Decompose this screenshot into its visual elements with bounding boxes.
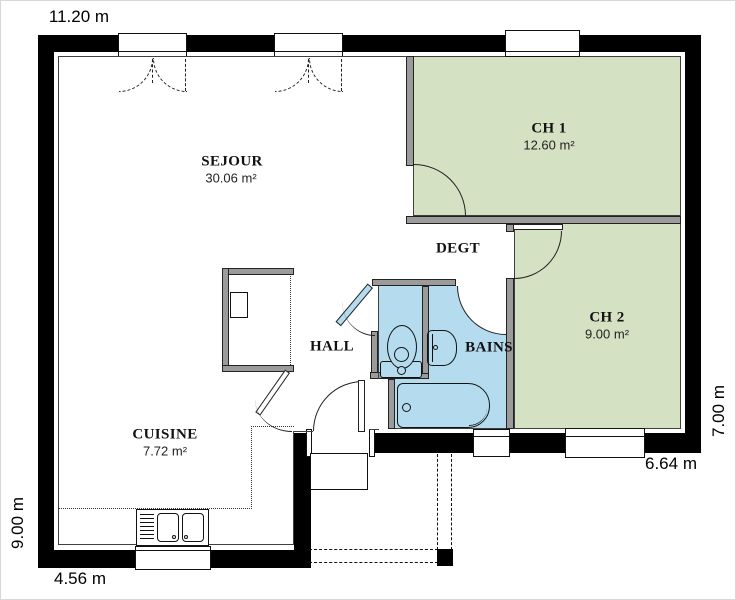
lining-left bbox=[58, 56, 59, 545]
room-label-hall: HALL bbox=[310, 339, 354, 356]
window-sejour-right-sill bbox=[274, 51, 343, 52]
lining-door-right bbox=[369, 429, 379, 430]
room-label-cuisine: CUISINE bbox=[132, 427, 197, 444]
lining-top bbox=[58, 56, 407, 57]
exterior-wall-left bbox=[38, 35, 54, 568]
french-door-swing-1-left bbox=[119, 58, 153, 92]
room-area-ch1: 12.60 m² bbox=[523, 138, 574, 153]
sink-drainer-line bbox=[140, 530, 154, 531]
wc-door-swing bbox=[342, 301, 375, 336]
bathtub-drain-icon bbox=[402, 403, 411, 412]
sink-drainer-line bbox=[140, 534, 154, 535]
room-label-ch1: CH 1 bbox=[531, 121, 566, 138]
window-ch2-sill bbox=[565, 436, 645, 437]
ch2-door-leaf bbox=[513, 224, 563, 230]
lining-bath-left bbox=[378, 286, 379, 379]
front-door-swing bbox=[313, 381, 363, 431]
wall-wc-top bbox=[372, 279, 456, 286]
sink-drainer-line bbox=[140, 518, 154, 519]
window-cuisine-sill bbox=[135, 550, 211, 551]
porch-edge-bottom-inner bbox=[309, 562, 438, 564]
french-door-swing-2-right bbox=[309, 58, 343, 92]
french-door-leaf-line-2a bbox=[308, 59, 309, 83]
washbasin-tap-icon bbox=[433, 345, 438, 350]
window-sejour-left bbox=[118, 33, 187, 57]
sink-tap-left-icon bbox=[172, 535, 176, 539]
window-sejour-left-sill bbox=[118, 51, 187, 52]
exterior-wall-right bbox=[685, 35, 701, 453]
window-ch1-sill bbox=[505, 51, 580, 52]
cuisine-boundary-vertical bbox=[251, 426, 252, 509]
wall-bath-left bbox=[388, 379, 395, 429]
entrance-step bbox=[310, 453, 368, 490]
room-area-ch2: 9.00 m² bbox=[585, 327, 629, 342]
water-heater-icon bbox=[230, 292, 248, 318]
room-label-ch2: CH 2 bbox=[589, 310, 624, 327]
dimension-right: 7.00 m bbox=[709, 385, 729, 437]
wall-ch1-bottom bbox=[406, 216, 681, 224]
sink-drainer-line bbox=[140, 526, 154, 527]
room-label-bains: BAINS bbox=[465, 340, 513, 357]
lining-hall-bottom bbox=[293, 431, 313, 432]
hall-door-swing bbox=[255, 399, 292, 432]
wall-sejour-ch1 bbox=[406, 56, 414, 166]
toilet-bowl-inner-icon bbox=[394, 347, 409, 362]
porch-edge-bottom-outer bbox=[309, 549, 438, 551]
dimension-bottom-right: 6.64 m bbox=[645, 454, 697, 474]
lining-connector bbox=[293, 431, 294, 545]
exterior-wall-bottom-right-b bbox=[369, 433, 701, 453]
toilet-flush-knob-icon bbox=[397, 366, 406, 375]
porch-edge-right-inner bbox=[437, 454, 439, 550]
french-door-leaf-line-2b bbox=[341, 59, 342, 91]
window-ch2 bbox=[565, 428, 645, 458]
sink-drainer-line bbox=[140, 522, 154, 523]
closet-open-front bbox=[290, 276, 291, 365]
sink-drainer-line bbox=[140, 538, 154, 539]
floor-plan: SEJOUR 30.06 m² CH 1 12.60 m² CH 2 9.00 … bbox=[0, 0, 736, 600]
room-area-cuisine: 7.72 m² bbox=[143, 444, 187, 459]
front-door-leaf bbox=[358, 380, 365, 432]
french-door-swing-2-left bbox=[275, 58, 309, 92]
french-door-leaf-line-1a bbox=[152, 59, 153, 83]
dimension-top: 11.20 m bbox=[49, 7, 109, 27]
window-bains-sill bbox=[473, 436, 510, 437]
french-door-leaf-line-1b bbox=[185, 59, 186, 91]
window-sejour-right bbox=[274, 33, 343, 57]
french-door-swing-1-right bbox=[153, 58, 187, 92]
room-area-sejour: 30.06 m² bbox=[205, 171, 256, 186]
sink-drainer-line bbox=[140, 514, 154, 515]
sink-tap-right-icon bbox=[184, 535, 188, 539]
window-bains bbox=[473, 429, 510, 457]
room-label-sejour: SEJOUR bbox=[201, 154, 263, 171]
porch-edge-right-outer bbox=[451, 454, 453, 550]
window-ch1 bbox=[505, 30, 580, 57]
room-label-degt: DEGT bbox=[436, 241, 480, 258]
porch-post bbox=[437, 549, 453, 566]
front-door-jamb-right bbox=[369, 429, 375, 457]
closet-wall-top bbox=[222, 268, 294, 275]
dimension-left: 9.00 m bbox=[8, 497, 28, 549]
closet-wall-left bbox=[222, 268, 229, 372]
dimension-bottom-left: 4.56 m bbox=[54, 569, 106, 589]
lining-bath-bottom bbox=[395, 428, 506, 429]
